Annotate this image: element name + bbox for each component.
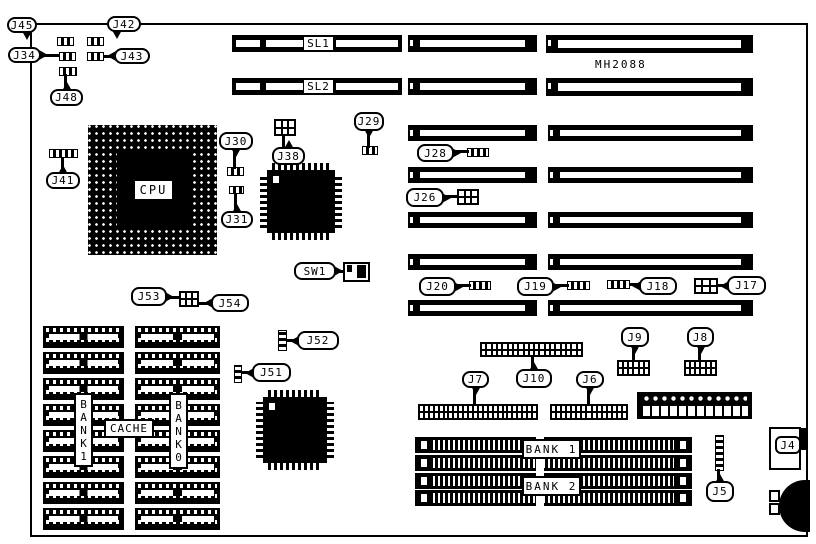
j5-jumper xyxy=(715,435,724,471)
pin xyxy=(619,369,622,374)
pin xyxy=(562,351,565,356)
pin xyxy=(523,406,526,411)
pin xyxy=(464,413,467,418)
callout-j34: J34 xyxy=(8,47,41,63)
pin xyxy=(593,406,596,411)
callout-j26: J26 xyxy=(406,188,444,207)
j29-jumper xyxy=(362,146,378,155)
pin xyxy=(567,413,570,418)
pin xyxy=(459,406,462,411)
pin xyxy=(508,406,511,411)
pin xyxy=(551,344,554,349)
pin xyxy=(572,344,575,349)
dip-socket xyxy=(135,508,220,530)
chip-pins xyxy=(260,175,267,228)
pin xyxy=(582,413,585,418)
pin xyxy=(435,406,438,411)
chip-pins xyxy=(272,233,330,240)
pin xyxy=(577,406,580,411)
pin xyxy=(645,369,648,374)
dip-socket xyxy=(135,352,220,374)
pin xyxy=(454,406,457,411)
chip-body xyxy=(263,397,327,463)
pin xyxy=(289,121,294,127)
power-connector-sockets xyxy=(641,406,748,416)
callout-j10: J10 xyxy=(516,369,552,388)
slot-stripe xyxy=(236,40,260,47)
pin xyxy=(445,413,448,418)
pin xyxy=(523,413,526,418)
pin xyxy=(449,413,452,418)
pin xyxy=(425,413,428,418)
dip-socket xyxy=(135,326,220,348)
pin xyxy=(420,406,423,411)
pin xyxy=(578,351,581,356)
pin xyxy=(289,129,294,135)
pin xyxy=(567,344,570,349)
callout-j31: J31 xyxy=(221,211,253,228)
pin xyxy=(514,344,517,349)
pin xyxy=(603,406,606,411)
j51-jumper xyxy=(234,365,242,383)
pin xyxy=(608,406,611,411)
chip-pins xyxy=(268,463,322,470)
callout-j5: J5 xyxy=(706,481,734,502)
j8-connector xyxy=(684,360,717,376)
pin xyxy=(283,121,288,127)
pin xyxy=(623,413,626,418)
callout-j51: J51 xyxy=(252,363,291,382)
pin xyxy=(593,413,596,418)
isa-slot-segment xyxy=(546,35,753,53)
pin xyxy=(546,351,549,356)
pin xyxy=(430,413,433,418)
callout-j43: J43 xyxy=(114,48,150,64)
callout-j53: J53 xyxy=(131,287,167,306)
pin xyxy=(562,413,565,418)
cpu-core: CPU xyxy=(117,153,190,226)
chip-pins xyxy=(268,390,322,397)
pin xyxy=(691,369,694,374)
isa-slot-segment xyxy=(408,300,537,316)
callout-j7: J7 xyxy=(462,371,489,388)
pin xyxy=(634,369,637,374)
pin xyxy=(479,406,482,411)
pin xyxy=(557,413,560,418)
pin xyxy=(540,344,543,349)
pin xyxy=(482,344,485,349)
pin xyxy=(459,198,464,203)
vlb-slot-sl1: SL1 xyxy=(232,35,402,52)
callout-j42: J42 xyxy=(107,16,141,32)
j26-jumper-block xyxy=(457,189,479,205)
pin xyxy=(430,406,433,411)
pin xyxy=(533,406,536,411)
dip-socket xyxy=(43,326,124,348)
pin xyxy=(530,351,533,356)
pin xyxy=(540,351,543,356)
pin xyxy=(603,413,606,418)
isa-slot-segment xyxy=(548,300,753,316)
j6-connector xyxy=(550,404,628,420)
pin xyxy=(440,406,443,411)
pin xyxy=(503,344,506,349)
pin xyxy=(712,362,715,367)
chip-pins xyxy=(256,402,263,458)
pin xyxy=(181,293,185,298)
callout-j18: J18 xyxy=(639,277,677,295)
pin xyxy=(640,369,643,374)
keyboard-pin xyxy=(769,503,780,515)
dip-socket xyxy=(135,482,220,504)
cpu-label: CPU xyxy=(135,181,173,199)
pin xyxy=(503,351,506,356)
pin xyxy=(629,362,632,367)
pin xyxy=(466,191,471,196)
pin xyxy=(567,406,570,411)
callout-j45: J45 xyxy=(7,17,37,33)
pin xyxy=(629,369,632,374)
bank0-vertical-label: BANK0 xyxy=(169,393,188,469)
pin xyxy=(466,198,471,203)
chip-pins xyxy=(327,402,334,458)
cache-label: CACHE xyxy=(104,419,154,438)
pin xyxy=(459,413,462,418)
pin xyxy=(619,362,622,367)
slot-label-sl1: SL1 xyxy=(303,36,334,51)
pin xyxy=(533,413,536,418)
pin xyxy=(530,344,533,349)
callout-j8: J8 xyxy=(687,327,714,347)
j53-jumper-block xyxy=(179,291,199,307)
switch-position xyxy=(357,265,366,278)
j48-jumper xyxy=(59,67,77,76)
pin xyxy=(528,413,531,418)
isa-slot-segment xyxy=(546,78,753,96)
pin xyxy=(618,406,621,411)
j9-connector xyxy=(617,360,650,376)
pin xyxy=(535,344,538,349)
pin xyxy=(712,369,715,374)
callout-j29: J29 xyxy=(354,112,384,131)
pin xyxy=(474,406,477,411)
pin xyxy=(525,344,528,349)
callout-j52: J52 xyxy=(297,331,339,350)
pin xyxy=(577,413,580,418)
pin xyxy=(498,351,501,356)
pin xyxy=(435,413,438,418)
dip-socket xyxy=(43,482,124,504)
j19-jumper xyxy=(567,281,590,290)
pin xyxy=(489,406,492,411)
callout-j9: J9 xyxy=(621,327,649,347)
power-connector xyxy=(637,392,752,419)
callout-j38: J38 xyxy=(272,147,305,165)
vlb-slot-sl2: SL2 xyxy=(232,78,402,95)
pin xyxy=(276,129,281,135)
pin xyxy=(696,369,699,374)
j7-connector xyxy=(418,404,538,420)
sw1-switch xyxy=(343,262,370,282)
pin xyxy=(494,413,497,418)
pin xyxy=(518,413,521,418)
pin xyxy=(598,406,601,411)
pin xyxy=(703,287,708,292)
pin xyxy=(572,406,575,411)
qfp-chip-bottom xyxy=(256,390,334,470)
isa-slot-segment xyxy=(548,212,753,228)
pin xyxy=(472,191,477,196)
pin xyxy=(498,344,501,349)
pin xyxy=(519,351,522,356)
pin xyxy=(557,406,560,411)
motherboard-diagram: MH2088 SL1 SL2 CPU xyxy=(0,0,816,544)
pin xyxy=(562,344,565,349)
callout-j19: J19 xyxy=(517,277,554,296)
j28-jumper xyxy=(467,148,489,157)
pin xyxy=(546,344,549,349)
pin xyxy=(711,287,716,292)
pin xyxy=(499,413,502,418)
pin xyxy=(598,413,601,418)
j45-jumper xyxy=(57,37,74,46)
pin xyxy=(535,351,538,356)
pin xyxy=(696,280,701,285)
power-connector-pins xyxy=(642,394,747,403)
pin xyxy=(440,413,443,418)
chip-pins xyxy=(335,175,342,228)
j18-jumper xyxy=(607,280,630,289)
pin xyxy=(484,406,487,411)
pin xyxy=(519,344,522,349)
pin xyxy=(459,191,464,196)
keyboard-pin xyxy=(769,490,780,502)
pin xyxy=(552,413,555,418)
pin xyxy=(556,351,559,356)
callout-j54: J54 xyxy=(211,294,249,312)
bank1-vertical-label: BANK1 xyxy=(74,393,93,467)
isa-slot-segment xyxy=(408,35,537,52)
pin xyxy=(691,362,694,367)
pin xyxy=(572,413,575,418)
pin xyxy=(487,351,490,356)
j17-jumper-block xyxy=(694,278,718,294)
j38-jumper-block xyxy=(274,119,296,136)
pin xyxy=(701,369,704,374)
pin xyxy=(552,406,555,411)
pin xyxy=(187,300,191,305)
pin xyxy=(556,344,559,349)
pin xyxy=(187,293,191,298)
pin xyxy=(562,406,565,411)
pin xyxy=(445,406,448,411)
callout-j4: J4 xyxy=(775,436,801,454)
cpu-socket: CPU xyxy=(88,125,217,255)
j20-jumper xyxy=(469,281,491,290)
pin xyxy=(613,413,616,418)
chip-body xyxy=(267,170,335,233)
qfp-chip-top xyxy=(260,163,342,240)
pin xyxy=(420,413,423,418)
callout-j30: J30 xyxy=(219,132,253,150)
isa-slot-segment xyxy=(408,212,537,228)
j42-jumper xyxy=(87,37,104,46)
pin xyxy=(283,129,288,135)
callout-j6: J6 xyxy=(576,371,604,388)
slot-stripe xyxy=(336,83,398,90)
callout-j17: J17 xyxy=(727,276,766,295)
dip-socket xyxy=(43,352,124,374)
pin xyxy=(474,413,477,418)
pin xyxy=(449,406,452,411)
pin xyxy=(707,369,710,374)
pin xyxy=(513,406,516,411)
pin xyxy=(587,406,590,411)
pin xyxy=(469,406,472,411)
callout-j41: J41 xyxy=(46,172,80,189)
pin xyxy=(707,362,710,367)
isa-slot-segment xyxy=(408,167,537,183)
pin xyxy=(509,344,512,349)
pin xyxy=(572,351,575,356)
pin xyxy=(482,351,485,356)
simm-bank2-label: BANK 2 xyxy=(522,476,581,496)
pin xyxy=(696,362,699,367)
pin xyxy=(425,406,428,411)
pin xyxy=(514,351,517,356)
slot-label-sl2: SL2 xyxy=(303,79,334,94)
slot-stripe xyxy=(236,83,260,90)
pin xyxy=(479,413,482,418)
pin xyxy=(582,406,585,411)
pin xyxy=(499,406,502,411)
pin xyxy=(489,413,492,418)
switch-position xyxy=(347,265,352,272)
callout-sw1: SW1 xyxy=(294,262,336,280)
pin xyxy=(618,413,621,418)
pin xyxy=(518,406,521,411)
j43-jumper xyxy=(87,52,104,61)
isa-slot-segment xyxy=(548,125,753,141)
j34-jumper xyxy=(59,52,76,61)
pin xyxy=(493,344,496,349)
pin xyxy=(513,413,516,418)
pin xyxy=(528,406,531,411)
pin xyxy=(551,351,554,356)
pin xyxy=(696,287,701,292)
pin xyxy=(504,406,507,411)
pin xyxy=(487,344,490,349)
pin xyxy=(193,293,197,298)
pin xyxy=(624,369,627,374)
pin xyxy=(484,413,487,418)
board-model-text: MH2088 xyxy=(595,58,647,71)
pin xyxy=(472,198,477,203)
pin xyxy=(578,344,581,349)
slot-stripe xyxy=(266,83,304,90)
dip-socket xyxy=(43,508,124,530)
pin xyxy=(645,362,648,367)
pin xyxy=(469,413,472,418)
pin xyxy=(634,362,637,367)
pin xyxy=(567,351,570,356)
isa-slot-segment xyxy=(408,125,537,141)
pin xyxy=(608,413,611,418)
pin xyxy=(640,362,643,367)
pin xyxy=(613,406,616,411)
pin xyxy=(701,362,704,367)
callout-j48: J48 xyxy=(50,89,83,106)
pin xyxy=(493,351,496,356)
pin xyxy=(525,351,528,356)
isa-slot-segment xyxy=(408,254,537,270)
pin xyxy=(508,413,511,418)
isa-slot-segment xyxy=(408,78,537,95)
pin xyxy=(494,406,497,411)
callout-j20: J20 xyxy=(419,277,456,296)
slot-stripe xyxy=(266,40,304,47)
pin xyxy=(703,280,708,285)
callout-j28: J28 xyxy=(417,144,454,162)
pin xyxy=(509,351,512,356)
isa-slot-segment xyxy=(548,254,753,270)
pin xyxy=(181,300,185,305)
pin xyxy=(686,369,689,374)
isa-slot-segment xyxy=(548,167,753,183)
pin xyxy=(624,362,627,367)
slot-stripe xyxy=(336,40,398,47)
pin xyxy=(686,362,689,367)
pin xyxy=(623,406,626,411)
pin xyxy=(587,413,590,418)
pin xyxy=(504,413,507,418)
pin xyxy=(464,406,467,411)
pin xyxy=(454,413,457,418)
simm-bank1-label: BANK 1 xyxy=(522,439,581,459)
j10-connector xyxy=(480,342,583,357)
pin xyxy=(276,121,281,127)
